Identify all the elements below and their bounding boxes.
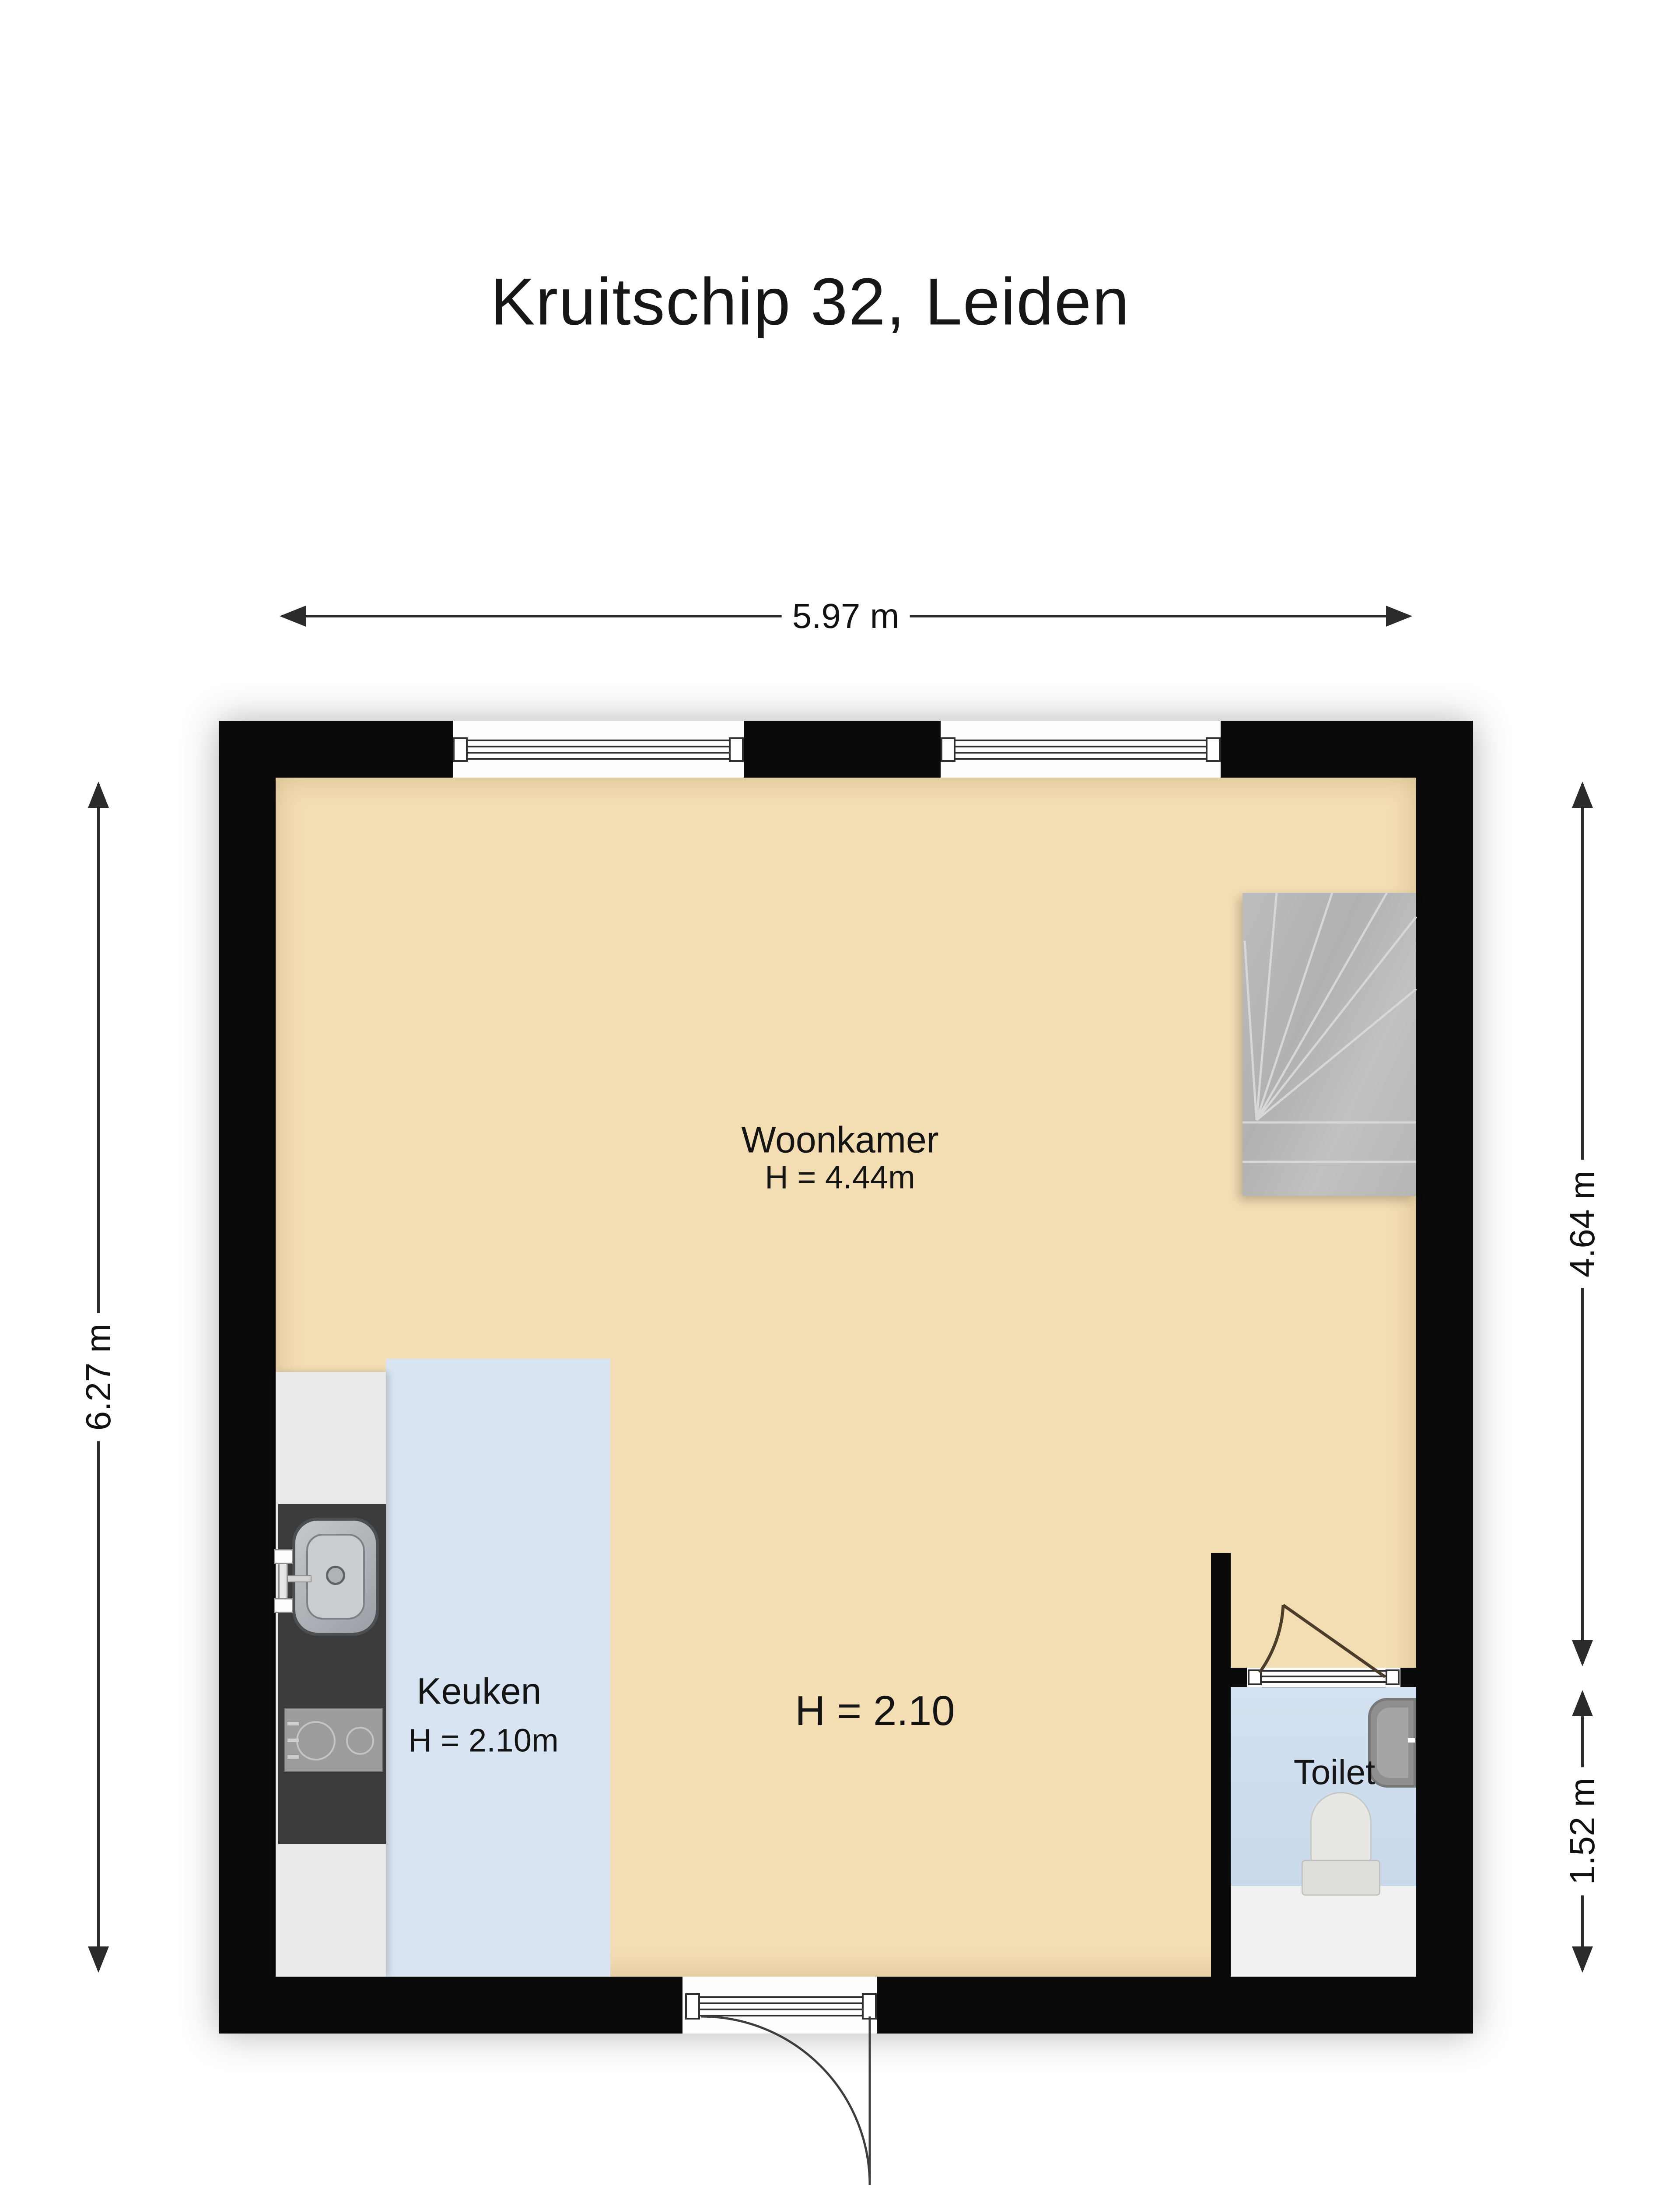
label-keuken: Keuken — [417, 1670, 542, 1713]
floorplan-page: Kruitschip 32, Leiden — [0, 0, 1680, 2188]
label-woonkamer: Woonkamer — [741, 1119, 938, 1161]
label-toilet: Toilet — [1294, 1752, 1375, 1792]
dim-top: 5.97 m — [782, 593, 910, 639]
page-title: Kruitschip 32, Leiden — [490, 264, 1130, 340]
label-woonkamer-height: H = 4.44m — [765, 1159, 915, 1196]
dim-right-lower: 1.52 m — [1560, 1767, 1605, 1896]
dim-right-upper: 4.64 m — [1560, 1160, 1605, 1288]
label-entree-height: H = 2.10 — [795, 1687, 955, 1735]
front-door-arc — [701, 2016, 870, 2185]
dim-left: 6.27 m — [76, 1313, 121, 1441]
toilet-door-arc — [1260, 1605, 1283, 1673]
stair-treads — [1242, 893, 1416, 1162]
label-keuken-height: H = 2.10m — [408, 1722, 558, 1759]
toilet-door-leaf — [1283, 1605, 1385, 1677]
